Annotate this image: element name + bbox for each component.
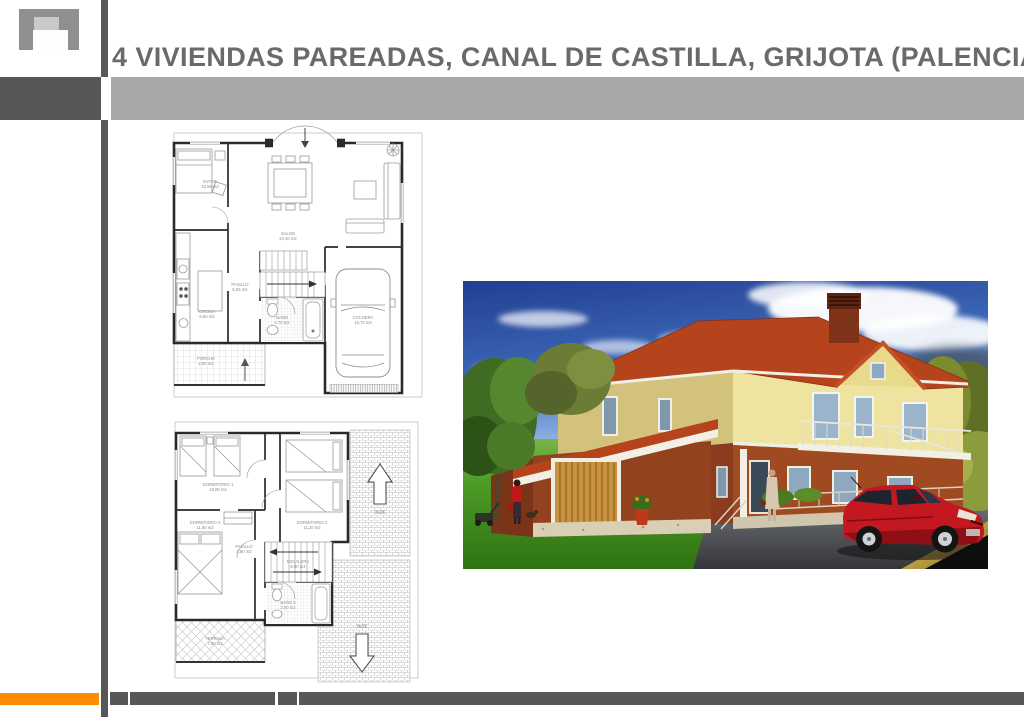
svg-text:2,00 m2: 2,00 m2 (198, 361, 214, 366)
svg-text:30%: 30% (374, 508, 385, 514)
footer-bar-segment-2 (130, 692, 275, 705)
svg-text:16,70 m2: 16,70 m2 (354, 320, 372, 325)
svg-text:6,00 m2: 6,00 m2 (290, 564, 306, 569)
svg-text:10,00 m2: 10,00 m2 (209, 487, 227, 492)
bathroom2 (266, 582, 331, 624)
footer-bar-segment-4 (299, 692, 1024, 705)
svg-text:24,40 m2: 24,40 m2 (279, 236, 297, 241)
svg-text:10,55 m2: 10,55 m2 (201, 184, 219, 189)
header-gray-bar (111, 77, 1024, 120)
header-dark-bar (0, 77, 101, 120)
svg-text:11,60 m2: 11,60 m2 (196, 525, 214, 530)
entrance-door (265, 126, 345, 148)
first-floor-plan: 30% 30% (160, 420, 432, 686)
svg-text:7,60 m2: 7,60 m2 (207, 641, 223, 646)
vertical-rule-top (101, 0, 108, 77)
handbag (507, 504, 513, 510)
vertical-rule (101, 120, 108, 717)
studio-logo-icon (19, 9, 79, 50)
car-mirror (913, 495, 919, 499)
porch (174, 343, 265, 385)
chimney (827, 293, 861, 343)
footer-bar-segment-1 (110, 692, 128, 705)
logo-door-shape (33, 30, 68, 50)
svg-text:3,00 m2: 3,00 m2 (280, 605, 296, 610)
svg-text:8,60 m2: 8,60 m2 (199, 314, 215, 319)
ground-floor-plan: ESTAR 10,55 m2 SALON 24,40 m2 COCINA 8,6… (160, 123, 432, 400)
svg-text:11,20 m2: 11,20 m2 (303, 525, 321, 530)
side-window (717, 467, 727, 497)
house-render-photo (463, 281, 988, 569)
svg-text:5,65 m2: 5,65 m2 (232, 287, 248, 292)
handbag (760, 500, 766, 506)
gable-window (871, 363, 885, 379)
footer-bar-segment-3 (278, 692, 297, 705)
logo-window-shape (34, 17, 59, 30)
license-plate (966, 529, 980, 536)
footer-orange-bar (0, 693, 99, 705)
svg-text:4,70 m2: 4,70 m2 (274, 320, 290, 325)
svg-text:3,80 m2: 3,80 m2 (236, 549, 252, 554)
garage-door-plan (330, 385, 398, 393)
page-title: 4 VIVIENDAS PAREADAS, CANAL DE CASTILLA,… (112, 42, 1017, 74)
garage-door (551, 458, 621, 526)
slide-page: 4 VIVIENDAS PAREADAS, CANAL DE CASTILLA,… (0, 0, 1024, 724)
bathroom (261, 297, 324, 342)
svg-text:30%: 30% (356, 622, 367, 628)
